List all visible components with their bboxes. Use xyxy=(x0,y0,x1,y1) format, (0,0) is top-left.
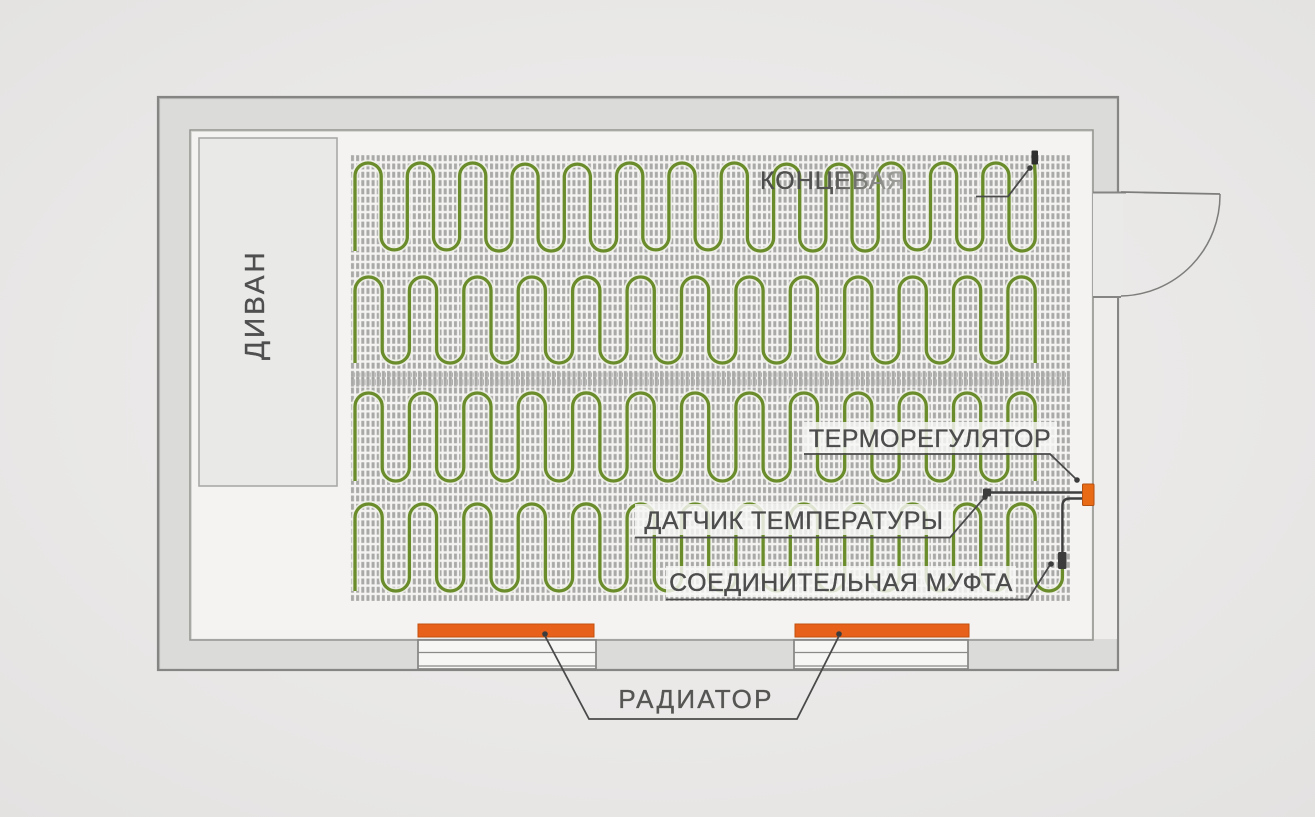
svg-text:ДИВАН: ДИВАН xyxy=(239,249,270,360)
svg-text:РАДИАТОР: РАДИАТОР xyxy=(618,684,773,714)
svg-text:ДАТЧИК ТЕМПЕРАТУРЫ: ДАТЧИК ТЕМПЕРАТУРЫ xyxy=(644,507,943,535)
svg-text:КОНЦЕВАЯ: КОНЦЕВАЯ xyxy=(760,167,906,195)
svg-text:СОЕДИНИТЕЛЬНАЯ МУФТА: СОЕДИНИТЕЛЬНАЯ МУФТА xyxy=(669,569,1013,597)
svg-text:ТЕРМОРЕГУЛЯТОР: ТЕРМОРЕГУЛЯТОР xyxy=(809,425,1051,453)
